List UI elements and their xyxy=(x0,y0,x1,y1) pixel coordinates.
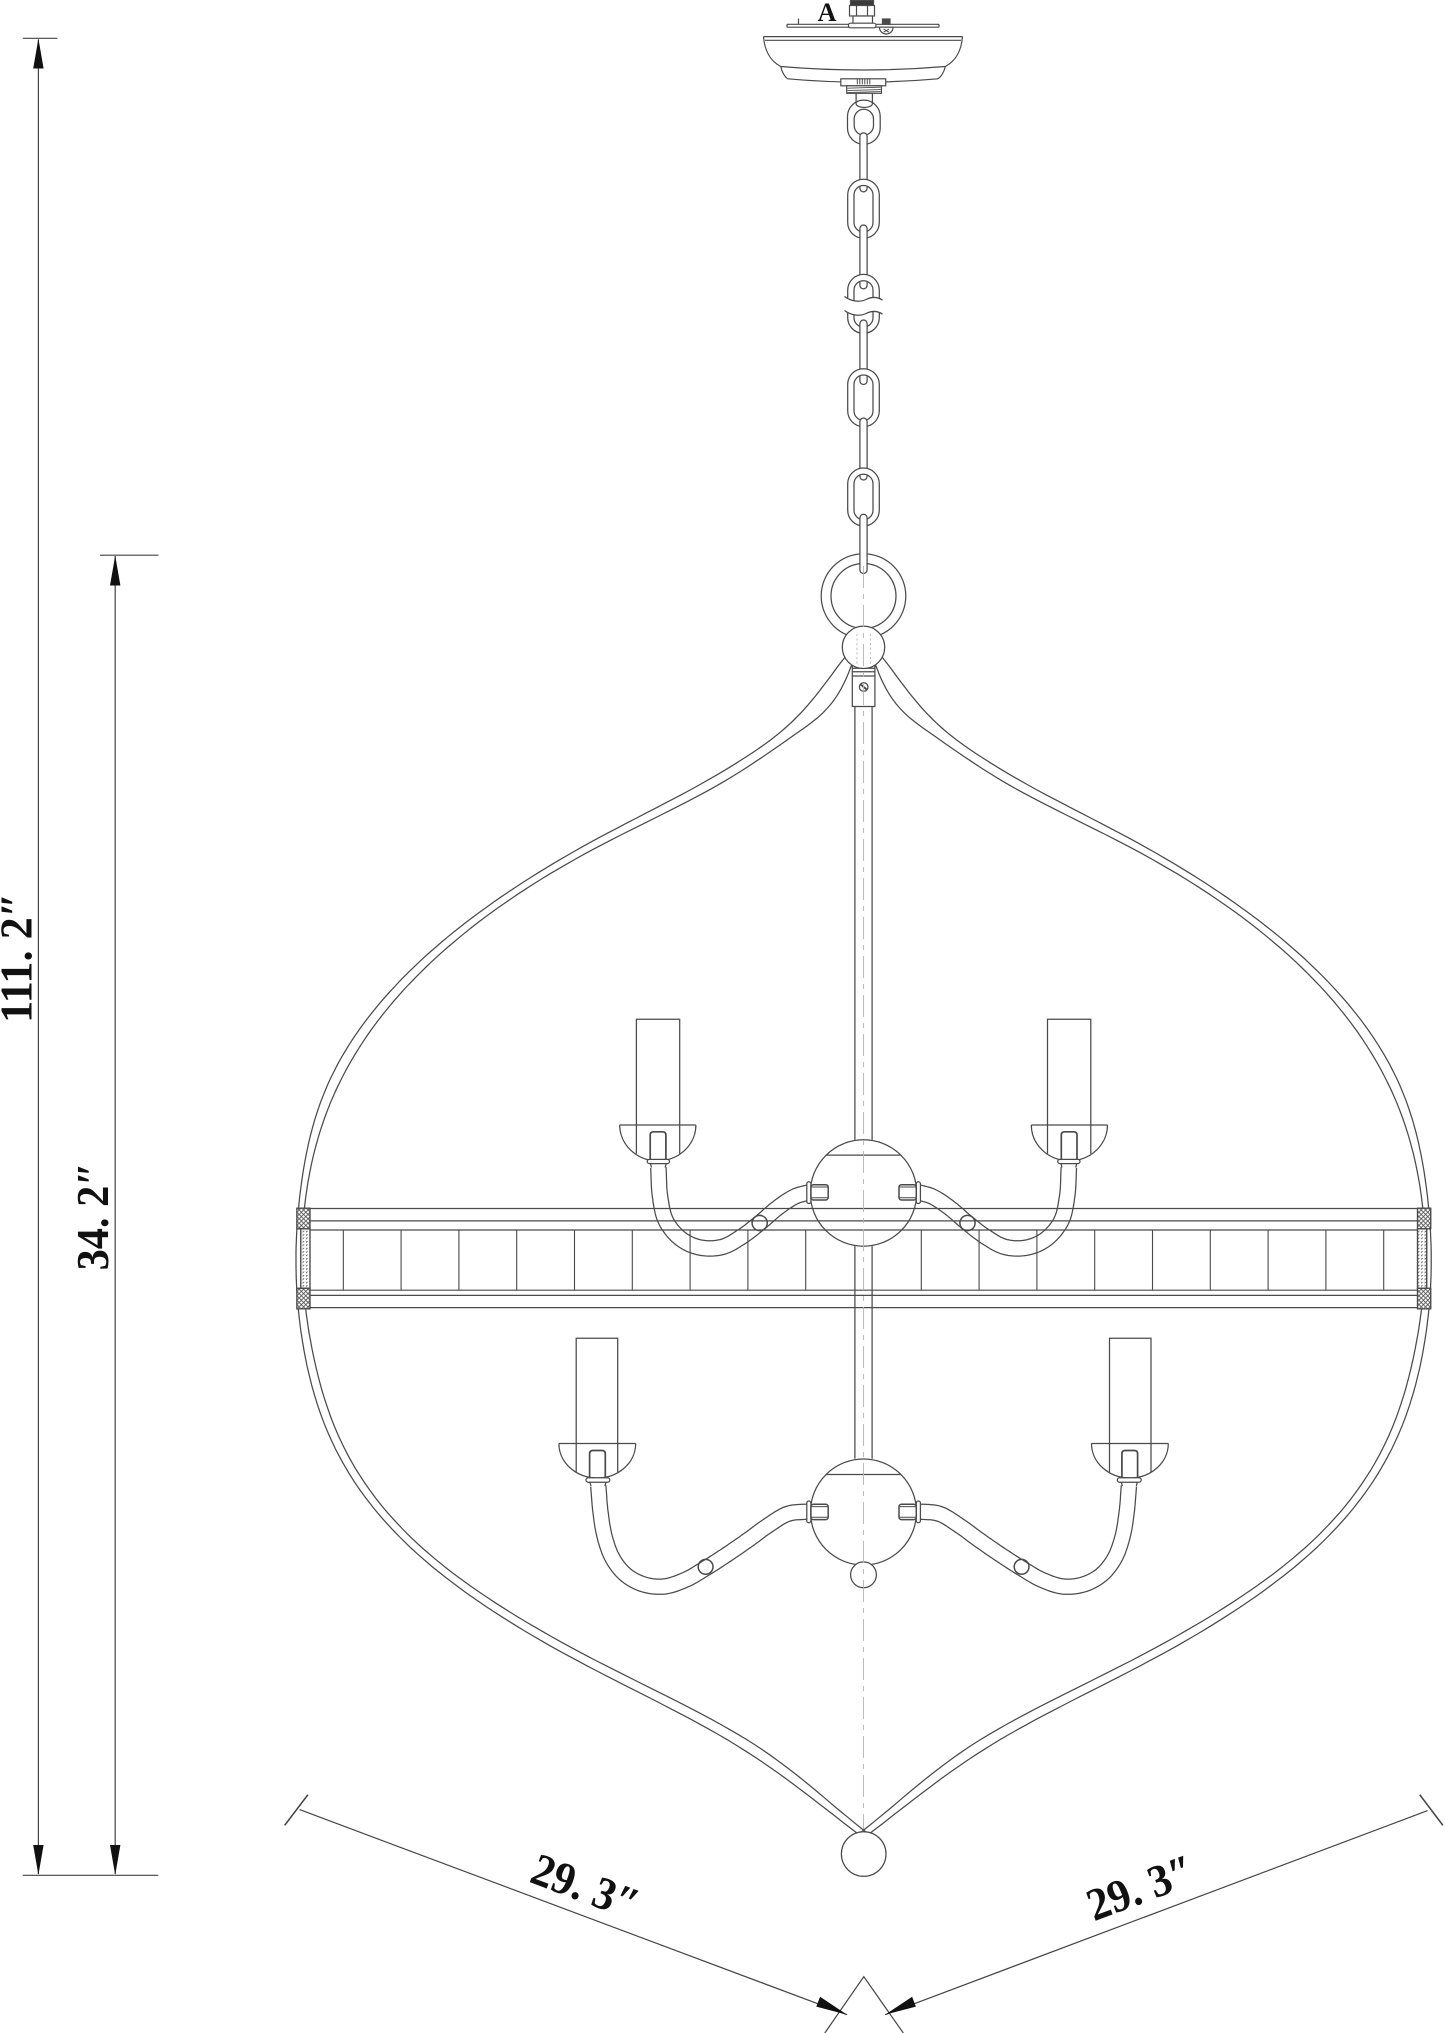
svg-text:111. 2″: 111. 2″ xyxy=(0,893,42,1023)
svg-text:34. 2″: 34. 2″ xyxy=(67,1162,118,1270)
svg-text:A: A xyxy=(818,0,837,27)
